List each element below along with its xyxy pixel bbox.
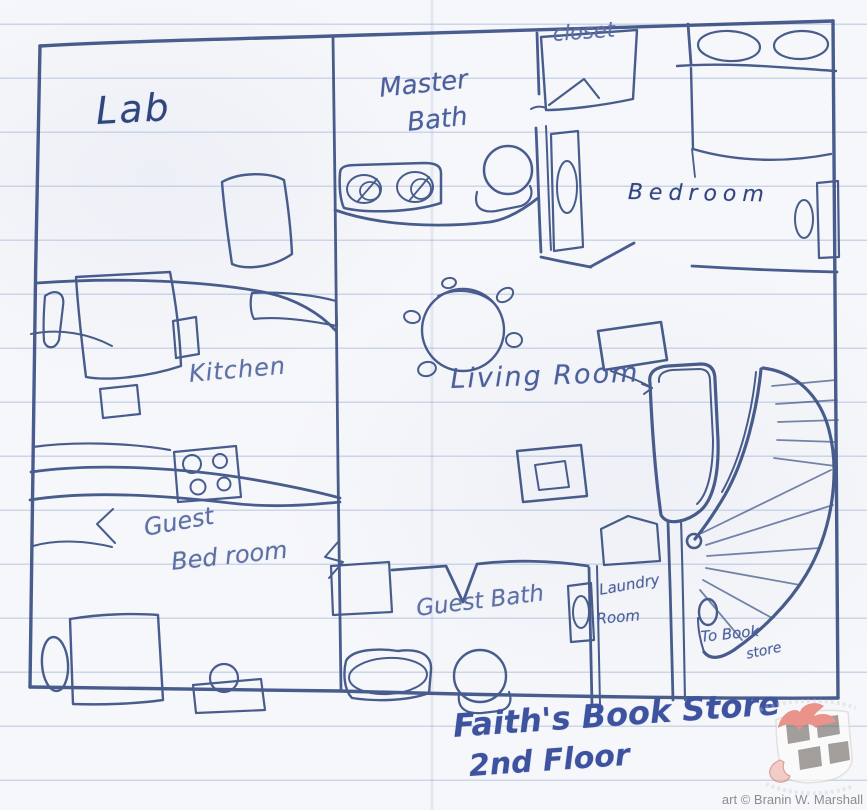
- notebook-paper-page: Lab Master Bath closet Bedroom Kitchen L…: [0, 0, 867, 810]
- lab-furniture: [222, 174, 292, 267]
- watermark-logo: [750, 698, 862, 798]
- bedroom-furniture: [551, 29, 839, 258]
- room-label-laundry-line2: Room: [596, 608, 641, 627]
- laundry-room-fixtures: [601, 516, 660, 565]
- stair-steps: [700, 380, 838, 640]
- artist-credit: art © Branin W. Marshall: [722, 792, 863, 807]
- armchair: [650, 364, 718, 522]
- room-label-lab: Lab: [95, 88, 171, 130]
- room-label-bedroom: Bedroom: [628, 182, 770, 206]
- spiral-staircase: [687, 368, 838, 657]
- room-label-closet: closet: [552, 20, 616, 45]
- master-bath-fixtures: [340, 146, 532, 211]
- room-label-master-bath-line2: Bath: [406, 104, 469, 136]
- room-label-living-room: Living Room: [450, 359, 640, 393]
